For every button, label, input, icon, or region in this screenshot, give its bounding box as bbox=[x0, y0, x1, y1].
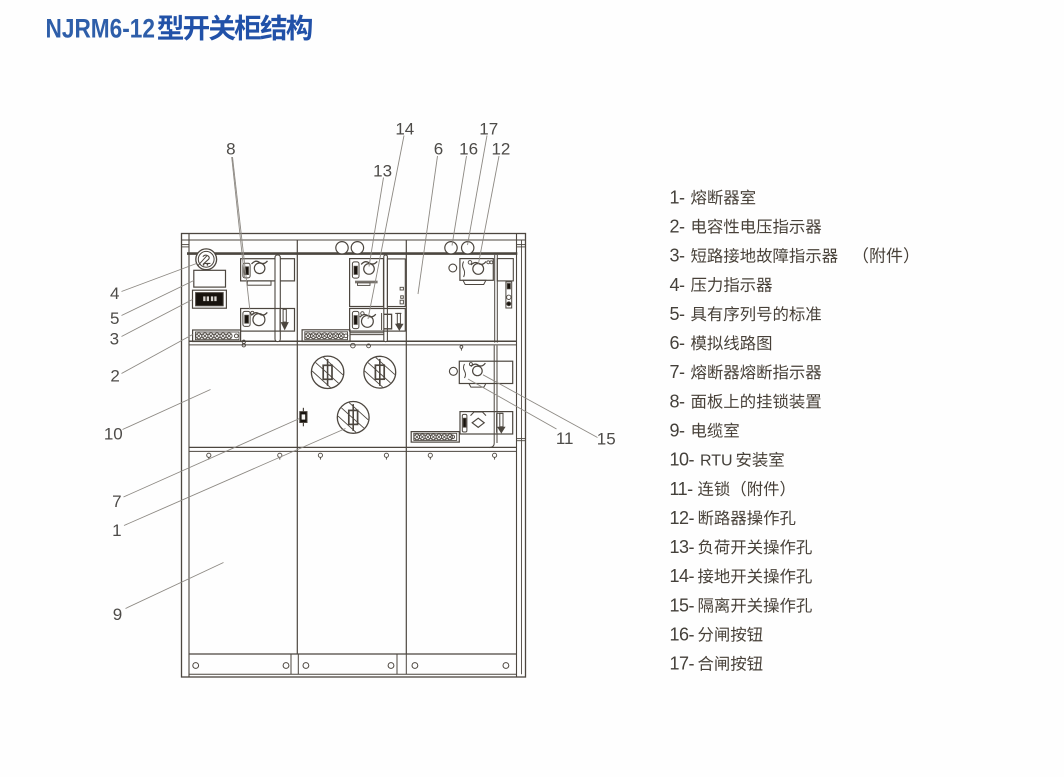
svg-text:7: 7 bbox=[112, 492, 121, 511]
svg-text:6-: 6- bbox=[670, 333, 686, 353]
svg-text:5: 5 bbox=[110, 309, 119, 328]
svg-text:14: 14 bbox=[395, 120, 414, 139]
svg-text:14-: 14- bbox=[670, 566, 695, 586]
svg-text:3-: 3- bbox=[670, 246, 686, 266]
svg-text:5-: 5- bbox=[670, 304, 686, 324]
svg-text:16-: 16- bbox=[670, 625, 695, 645]
svg-text:1: 1 bbox=[112, 521, 121, 540]
svg-text:15: 15 bbox=[597, 430, 616, 449]
svg-text:4-: 4- bbox=[670, 275, 686, 295]
svg-text:15-: 15- bbox=[670, 595, 695, 615]
svg-text:2: 2 bbox=[110, 367, 119, 386]
svg-text:8: 8 bbox=[226, 139, 235, 158]
svg-text:2-: 2- bbox=[670, 217, 686, 237]
svg-text:10: 10 bbox=[104, 424, 123, 443]
svg-text:9-: 9- bbox=[670, 421, 686, 441]
svg-text:17-: 17- bbox=[670, 654, 695, 674]
svg-text:10-: 10- bbox=[670, 450, 695, 470]
svg-text:13-: 13- bbox=[670, 537, 695, 557]
svg-text:11: 11 bbox=[556, 429, 574, 448]
svg-text:17: 17 bbox=[479, 120, 498, 139]
svg-text:6: 6 bbox=[434, 139, 443, 158]
svg-text:8-: 8- bbox=[670, 391, 686, 411]
svg-text:16: 16 bbox=[459, 139, 478, 158]
svg-text:9: 9 bbox=[113, 605, 122, 624]
svg-text:13: 13 bbox=[373, 162, 392, 181]
svg-text:3: 3 bbox=[110, 330, 119, 349]
svg-text:1-: 1- bbox=[670, 187, 686, 207]
svg-text:12-: 12- bbox=[670, 508, 695, 528]
svg-text:7-: 7- bbox=[670, 362, 686, 382]
svg-text:11-: 11- bbox=[670, 479, 694, 499]
svg-text:12: 12 bbox=[491, 139, 510, 158]
svg-text:NJRM6-12: NJRM6-12 bbox=[46, 15, 155, 44]
svg-text:RTU: RTU bbox=[700, 453, 733, 470]
svg-text:4: 4 bbox=[110, 284, 119, 303]
